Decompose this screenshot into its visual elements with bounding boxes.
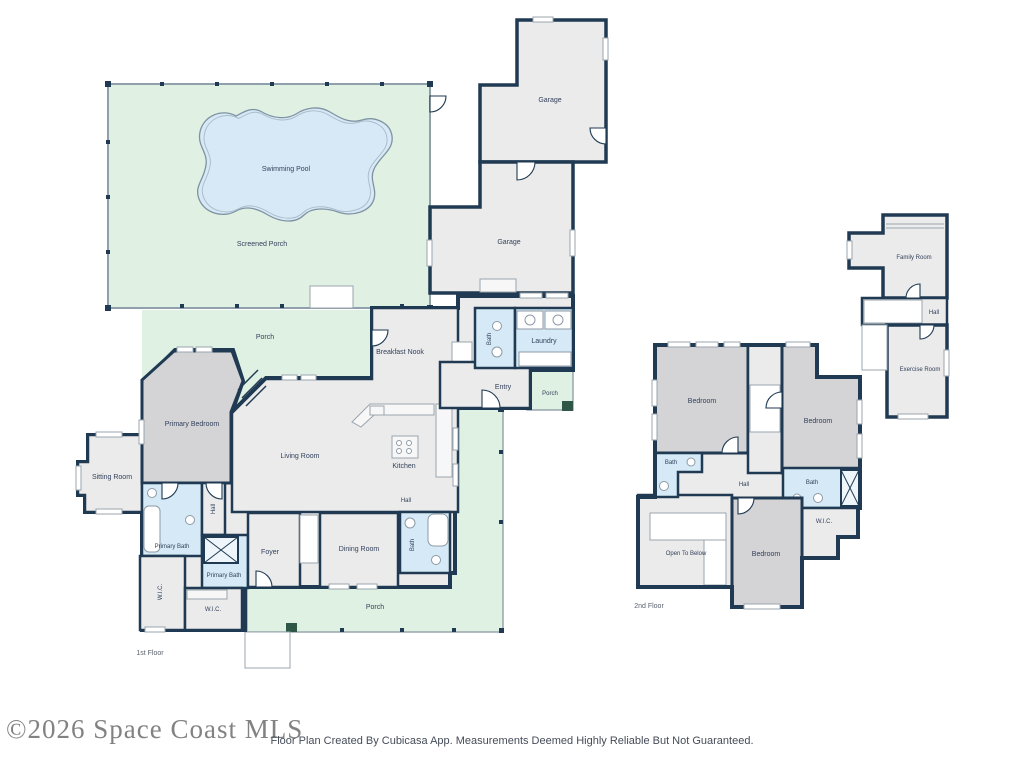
label-hall-suite: Hall [211,504,217,514]
label-foyer: Foyer [261,549,280,556]
label-bath-1: Bath [487,333,493,345]
label-bedroom-left: Bedroom [688,398,717,405]
label-exercise-room: Exercise Room [900,367,941,373]
label-laundry: Laundry [531,338,557,345]
label-dining-room: Dining Room [339,546,380,553]
label-wic-2f: W.I.C. [816,519,833,525]
label-hall-kitchen: Hall [401,498,411,504]
label-garage-lower: Garage [497,239,520,246]
room-garage-upper [480,20,606,162]
label-primary-bath-2: Primary Bath [207,573,242,579]
label-open-to-below: Open To Below [666,551,707,557]
label-bath-right-2f: Bath [806,480,818,486]
label-bedroom-lower: Bedroom [752,551,781,558]
label-family-room: Family Room [896,255,931,261]
label-living-room: Living Room [281,453,320,460]
label-garage-upper: Garage [538,97,561,104]
stairs-exercise [862,325,887,370]
label-swimming-pool: Swimming Pool [262,166,311,173]
label-bath-left-2f: Bath [665,460,677,466]
stairs-hall-upper [864,300,922,323]
label-first-floor: 1st Floor [136,650,164,657]
footer-disclaimer: Floor Plan Created By Cubicasa App. Meas… [0,735,1024,747]
basement-stairs [452,342,472,364]
label-porch-entry: Porch [542,391,558,397]
screened-porch [105,81,433,311]
label-porch-upper: Porch [256,334,274,341]
label-second-floor: 2nd Floor [634,603,664,610]
shower-1 [204,537,238,563]
label-hall-upper: Hall [929,310,939,316]
shower-2 [841,470,859,506]
label-kitchen: Kitchen [392,463,415,470]
stairs-open-to-below-run1 [650,513,726,540]
label-bath-dining: Bath [410,539,416,551]
floor-plan-page: Swimming Pool Screened Porch Porch Garag… [0,0,1024,768]
swimming-pool-shape [198,108,393,221]
second-floor: Bedroom Bedroom Bath Bath Hall W.I.C. Op… [634,342,862,610]
label-primary-bath: Primary Bath [155,544,190,550]
porch-stairs [310,286,353,308]
label-wic-2: W.I.C. [205,607,222,613]
stairs-open-to-below-run2 [704,540,726,585]
kitchen-island [392,436,418,458]
label-primary-bedroom: Primary Bedroom [165,421,220,428]
label-breakfast-nook: Breakfast Nook [376,349,424,356]
label-sitting-room: Sitting Room [92,474,132,481]
room-primary-bedroom [142,351,243,483]
interior-stairs [300,515,318,563]
floor-plan-canvas: Swimming Pool Screened Porch Porch Garag… [0,0,1024,768]
label-porch-lower: Porch [366,604,384,611]
room-bedroom-right [782,345,860,473]
label-entry: Entry [495,384,512,391]
room-garage-lower [430,162,573,293]
front-stairs [245,632,290,668]
label-bedroom-right: Bedroom [804,418,833,425]
upper-right-section: Family Room Hall Exercise Room [847,215,949,419]
label-wic-1: W.I.C. [158,584,164,601]
label-screened-porch: Screened Porch [237,241,287,248]
room-bath-1 [475,308,515,368]
label-hall-2f: Hall [739,482,749,488]
